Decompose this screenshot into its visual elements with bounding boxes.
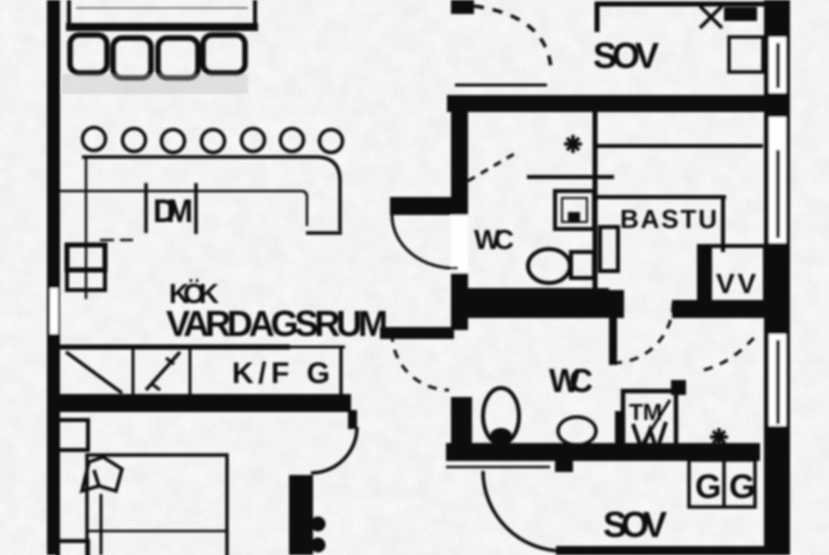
svg-text:SOV: SOV <box>593 35 659 76</box>
svg-text:K/F G: K/F G <box>232 357 330 390</box>
svg-text:SOV: SOV <box>603 504 667 545</box>
svg-text:WC: WC <box>549 362 593 399</box>
svg-text:VARDAGSRUM: VARDAGSRUM <box>166 303 388 344</box>
svg-text:G: G <box>695 468 721 506</box>
svg-text:G: G <box>729 468 755 506</box>
svg-text:BASTU: BASTU <box>620 204 717 234</box>
svg-text:WC: WC <box>474 224 514 255</box>
svg-text:DM: DM <box>153 193 193 229</box>
